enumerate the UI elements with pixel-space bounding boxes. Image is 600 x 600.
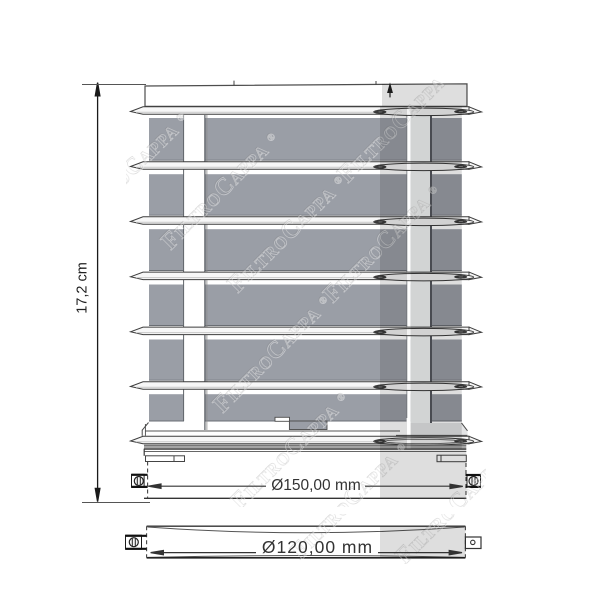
svg-text:17,2 cm: 17,2 cm — [75, 262, 91, 314]
svg-text:Ø120,00 mm: Ø120,00 mm — [262, 537, 373, 557]
svg-text:Ø150,00 mm: Ø150,00 mm — [271, 477, 361, 494]
